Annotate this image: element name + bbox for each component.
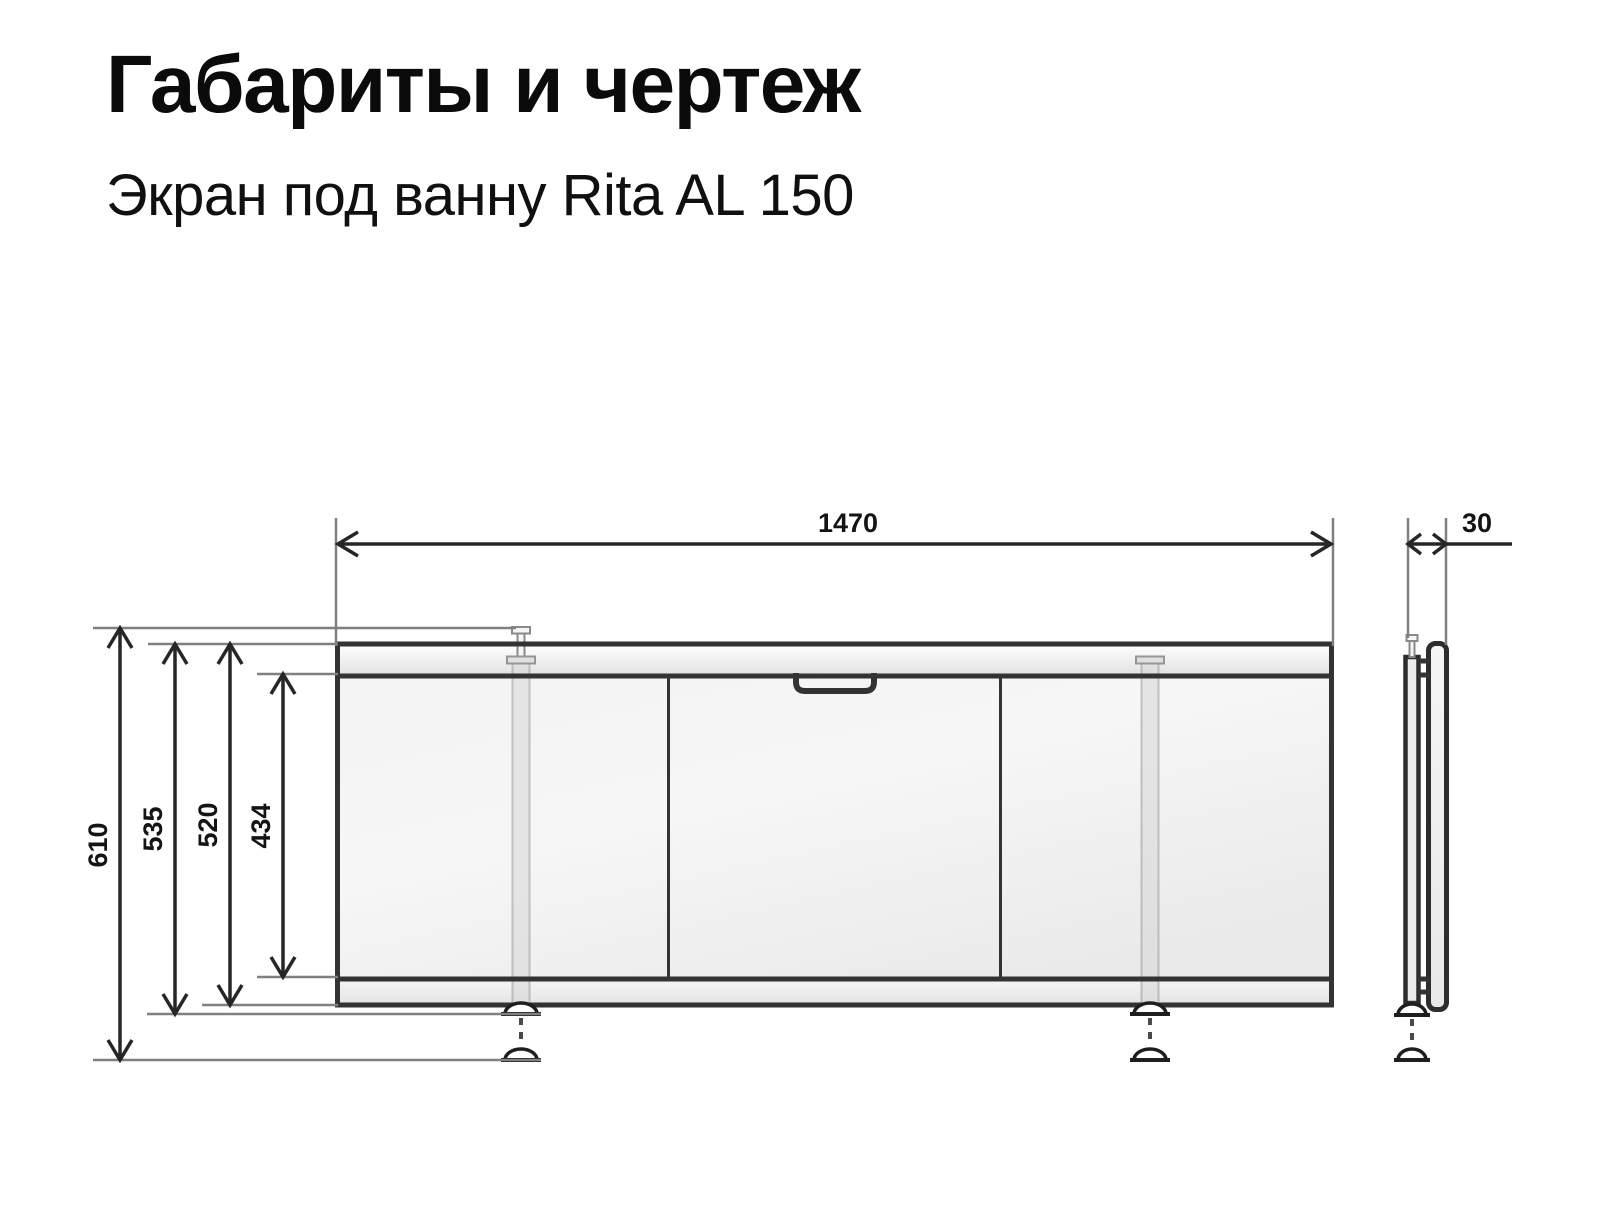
dimension-depth: 30 — [1408, 508, 1512, 554]
foot-right — [1130, 1003, 1170, 1060]
leg-flange — [1136, 657, 1164, 664]
foot-left — [501, 1003, 541, 1060]
dim-label-screen-height: 520 — [193, 802, 223, 847]
side-screen-profile — [1429, 644, 1447, 1010]
page-title: Габариты и чертеж — [106, 40, 859, 130]
front-view — [337, 627, 1332, 1060]
dim-label-width: 1470 — [818, 508, 878, 538]
dimension-screen-height: 520 — [193, 644, 242, 1005]
dim-label-height-feet-retracted: 535 — [138, 806, 168, 851]
bottom-rail — [340, 981, 1329, 1003]
side-view — [1394, 635, 1447, 1060]
dimension-overall-height: 610 — [83, 628, 132, 1060]
leg-shaft — [1142, 660, 1159, 1004]
dim-label-overall-height: 610 — [83, 822, 113, 867]
screen-panel-area — [340, 646, 1329, 1003]
side-leg-profile — [1406, 657, 1419, 1003]
dimension-height-feet-retracted: 535 — [138, 644, 187, 1014]
side-screw-stem — [1410, 641, 1415, 657]
leg-shaft — [513, 660, 530, 1004]
dim-label-panel-height: 434 — [246, 803, 276, 848]
dimension-width: 1470 — [338, 508, 1331, 556]
top-rail — [340, 646, 1329, 674]
page-subtitle: Экран под ванну Rita AL 150 — [106, 164, 854, 228]
dim-label-depth: 30 — [1462, 508, 1492, 538]
page: { "page": { "title": "Габариты и чертеж"… — [0, 0, 1600, 1200]
dimension-panel-height: 434 — [246, 674, 295, 977]
side-foot — [1394, 1004, 1430, 1060]
leg-flange — [507, 657, 535, 664]
